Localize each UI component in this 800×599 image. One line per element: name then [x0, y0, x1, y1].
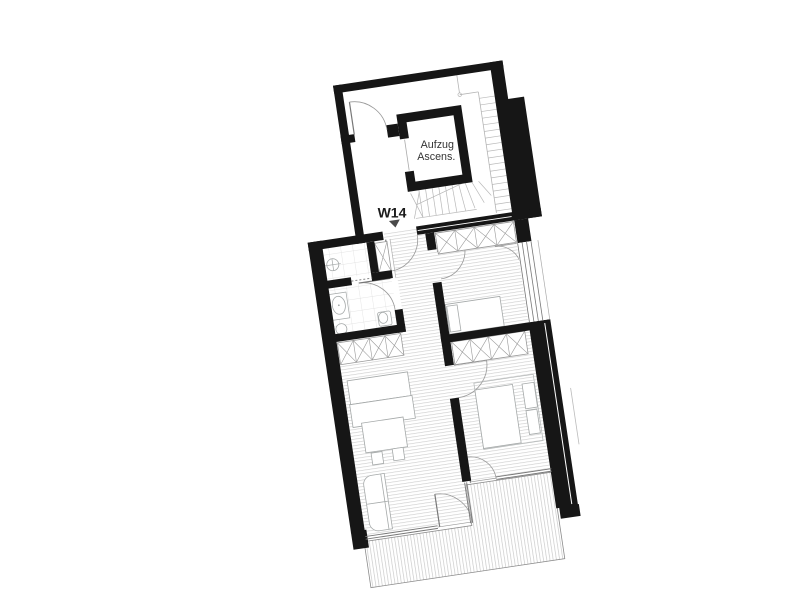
- svg-text:Aufzug: Aufzug: [421, 139, 454, 151]
- svg-text:Ascens.: Ascens.: [417, 151, 455, 163]
- svg-text:W14: W14: [378, 205, 407, 221]
